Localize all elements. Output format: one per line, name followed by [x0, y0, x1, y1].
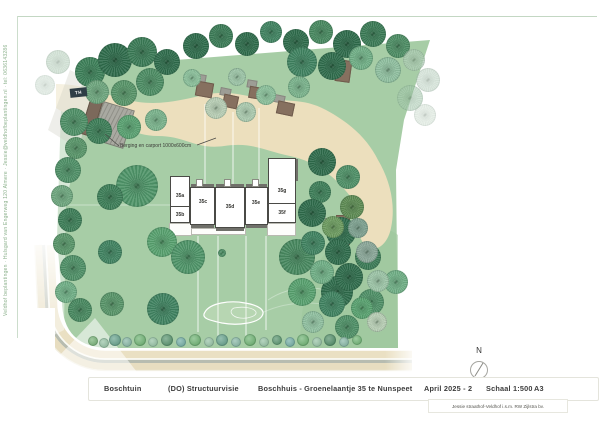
titleblock-project: Boschtuin [104, 384, 141, 393]
titleblock-scale: Schaal 1:500 [486, 384, 533, 393]
titleblock-subject: Boschhuis - Groenelaantje 35 te Nunspeet [258, 384, 412, 393]
leader-lines [0, 0, 600, 424]
site-plan-sheet: Veldhof beplantingen · Hulsgard van Enge… [0, 0, 600, 424]
titleblock-date: April 2025 - 2 [424, 384, 472, 393]
credit-text: Jessie straathof-Veldhof i.s.m. RW Zijls… [452, 404, 544, 409]
titleblock-phase: (DO) Structuurvisie [168, 384, 239, 393]
carport-annotation: Berging en carport 1000x600cm [120, 143, 191, 149]
titleblock-format: A3 [534, 384, 544, 393]
credit-box: Jessie straathof-Veldhof i.s.m. RW Zijls… [428, 399, 568, 413]
north-label: N [476, 346, 482, 355]
